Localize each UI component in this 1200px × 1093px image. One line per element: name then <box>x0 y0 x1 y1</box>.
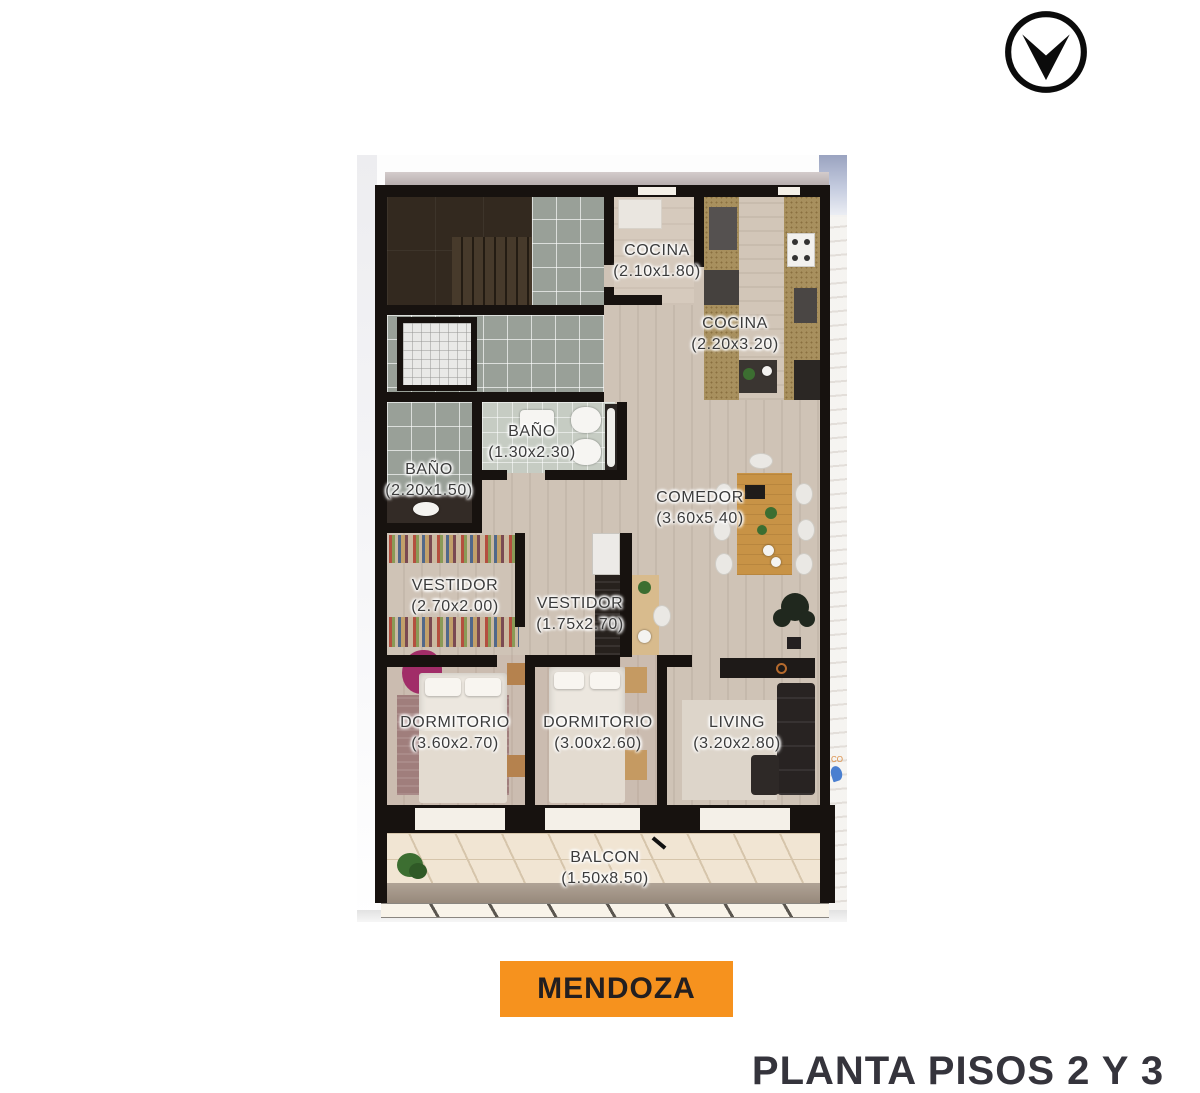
burner <box>792 239 798 245</box>
window-opening <box>415 808 505 830</box>
kitchen-cabinet <box>704 270 739 305</box>
dining-chair <box>795 483 813 505</box>
decor-ring <box>776 663 787 674</box>
wall-segment <box>375 805 387 903</box>
wall-segment <box>604 287 614 305</box>
desk-item <box>638 630 651 643</box>
fridge <box>709 207 737 250</box>
dish <box>762 366 772 376</box>
window-opening <box>778 187 800 195</box>
plate <box>771 557 781 567</box>
burner <box>792 255 798 261</box>
wall-segment <box>657 655 667 805</box>
wall-segment <box>472 402 482 523</box>
room-label-dormitorio-1: DORMITORIO (3.60x2.70) <box>400 712 510 754</box>
stove <box>787 233 815 267</box>
room-name: DORMITORIO <box>400 712 510 733</box>
tablet <box>745 485 765 499</box>
room-name: COCINA <box>691 313 779 334</box>
room-dims: (3.00x2.60) <box>543 733 653 754</box>
kitchen-1-counter <box>618 199 662 229</box>
nightstand <box>507 755 525 777</box>
kitchen-appliance <box>794 288 817 323</box>
wall-segment <box>515 533 525 627</box>
nightstand <box>507 663 525 685</box>
pillow <box>465 678 501 696</box>
pillow <box>554 672 584 689</box>
room-name: COMEDOR <box>656 487 744 508</box>
room-label-cocina-1: COCINA (2.10x1.80) <box>613 240 701 282</box>
wall-segment <box>614 295 662 305</box>
sofa-chaise <box>751 755 779 795</box>
stair-steps <box>452 237 532 305</box>
wall-segment <box>482 470 507 480</box>
room-name: VESTIDOR <box>411 575 499 596</box>
pillow <box>590 672 620 689</box>
wardrobe-shelf <box>389 535 519 563</box>
window-opening <box>545 808 640 830</box>
room-dims: (1.75x2.70) <box>536 614 624 635</box>
wall-segment <box>375 523 482 533</box>
plant-icon <box>773 609 791 627</box>
dining-chair <box>795 553 813 575</box>
room-dims: (2.20x3.20) <box>691 334 779 355</box>
wall-segment <box>535 655 620 667</box>
brand-logo <box>1002 8 1090 96</box>
plant-pot <box>787 637 801 649</box>
room-dims: (1.30x2.30) <box>488 442 576 463</box>
tiled-lobby <box>532 195 604 305</box>
floor-plan-image: CO <box>357 155 847 922</box>
wall-segment <box>820 805 835 903</box>
room-dims: (3.60x5.40) <box>656 508 744 529</box>
wall-segment <box>617 402 627 473</box>
background-fade-left <box>357 155 377 922</box>
bathroom-1-sink <box>413 502 439 516</box>
room-name: BAÑO <box>488 421 576 442</box>
kitchen-counter <box>794 360 820 400</box>
room-name: DORMITORIO <box>543 712 653 733</box>
room-name: BAÑO <box>385 459 473 480</box>
nightstand <box>625 750 647 780</box>
balcony-railing <box>381 903 829 918</box>
dining-chair <box>797 519 815 541</box>
wall-segment <box>385 655 497 667</box>
washing-machine <box>592 533 620 575</box>
pillow <box>425 678 461 696</box>
map-watermark: CO <box>827 755 847 791</box>
plan-title: PLANTA PISOS 2 Y 3 <box>752 1051 1164 1091</box>
room-label-vestidor-1: VESTIDOR (2.70x2.00) <box>411 575 499 617</box>
room-label-living: LIVING (3.20x2.80) <box>693 712 781 754</box>
room-dims: (3.20x2.80) <box>693 733 781 754</box>
plant-icon <box>757 525 767 535</box>
room-name: BALCON <box>561 847 649 868</box>
map-pin-icon <box>829 765 844 783</box>
wall-segment <box>385 305 604 315</box>
room-name: COCINA <box>613 240 701 261</box>
room-label-cocina-2: COCINA (2.20x3.20) <box>691 313 779 355</box>
window-opening <box>700 808 790 830</box>
room-name: VESTIDOR <box>536 593 624 614</box>
room-label-dormitorio-2: DORMITORIO (3.00x2.60) <box>543 712 653 754</box>
window-opening <box>638 187 676 195</box>
room-label-vestidor-2: VESTIDOR (1.75x2.70) <box>536 593 624 635</box>
room-dims: (3.60x2.70) <box>400 733 510 754</box>
room-dims: (2.70x2.00) <box>411 596 499 617</box>
wardrobe-shelf <box>389 617 519 647</box>
burner <box>804 239 810 245</box>
plant-icon <box>765 507 777 519</box>
desk-chair <box>653 605 671 627</box>
location-button[interactable]: MENDOZA <box>500 961 733 1017</box>
dining-chair <box>749 453 773 469</box>
plant-icon <box>799 611 815 627</box>
room-dims: (1.50x8.50) <box>561 868 649 889</box>
sofa <box>777 683 815 795</box>
balcony-plant <box>409 863 427 879</box>
wall-segment <box>820 185 830 805</box>
room-dims: (2.10x1.80) <box>613 261 701 282</box>
location-button-label: MENDOZA <box>537 972 696 1006</box>
wall-segment <box>525 655 535 805</box>
room-dims: (2.20x1.50) <box>385 480 473 501</box>
tv-unit <box>720 658 815 678</box>
dining-table <box>737 473 792 575</box>
bathroom-2-bathtub <box>605 404 617 471</box>
wall-segment <box>375 185 830 197</box>
nightstand <box>625 667 647 693</box>
kitchen-island <box>739 360 777 393</box>
burner <box>804 255 810 261</box>
dining-chair <box>715 553 733 575</box>
room-label-balcon: BALCON (1.50x8.50) <box>561 847 649 889</box>
elevator-shaft <box>397 317 477 391</box>
wall-segment <box>385 392 604 402</box>
room-label-comedor: COMEDOR (3.60x5.40) <box>656 487 744 529</box>
room-label-bano-grande: BAÑO (2.20x1.50) <box>385 459 473 501</box>
room-label-bano-chico: BAÑO (1.30x2.30) <box>488 421 576 463</box>
v-arrow-circle-icon <box>1002 8 1090 96</box>
plate <box>763 545 774 556</box>
plant-icon <box>638 581 651 594</box>
room-name: LIVING <box>693 712 781 733</box>
wall-segment <box>545 470 627 480</box>
plant-icon <box>743 368 755 380</box>
